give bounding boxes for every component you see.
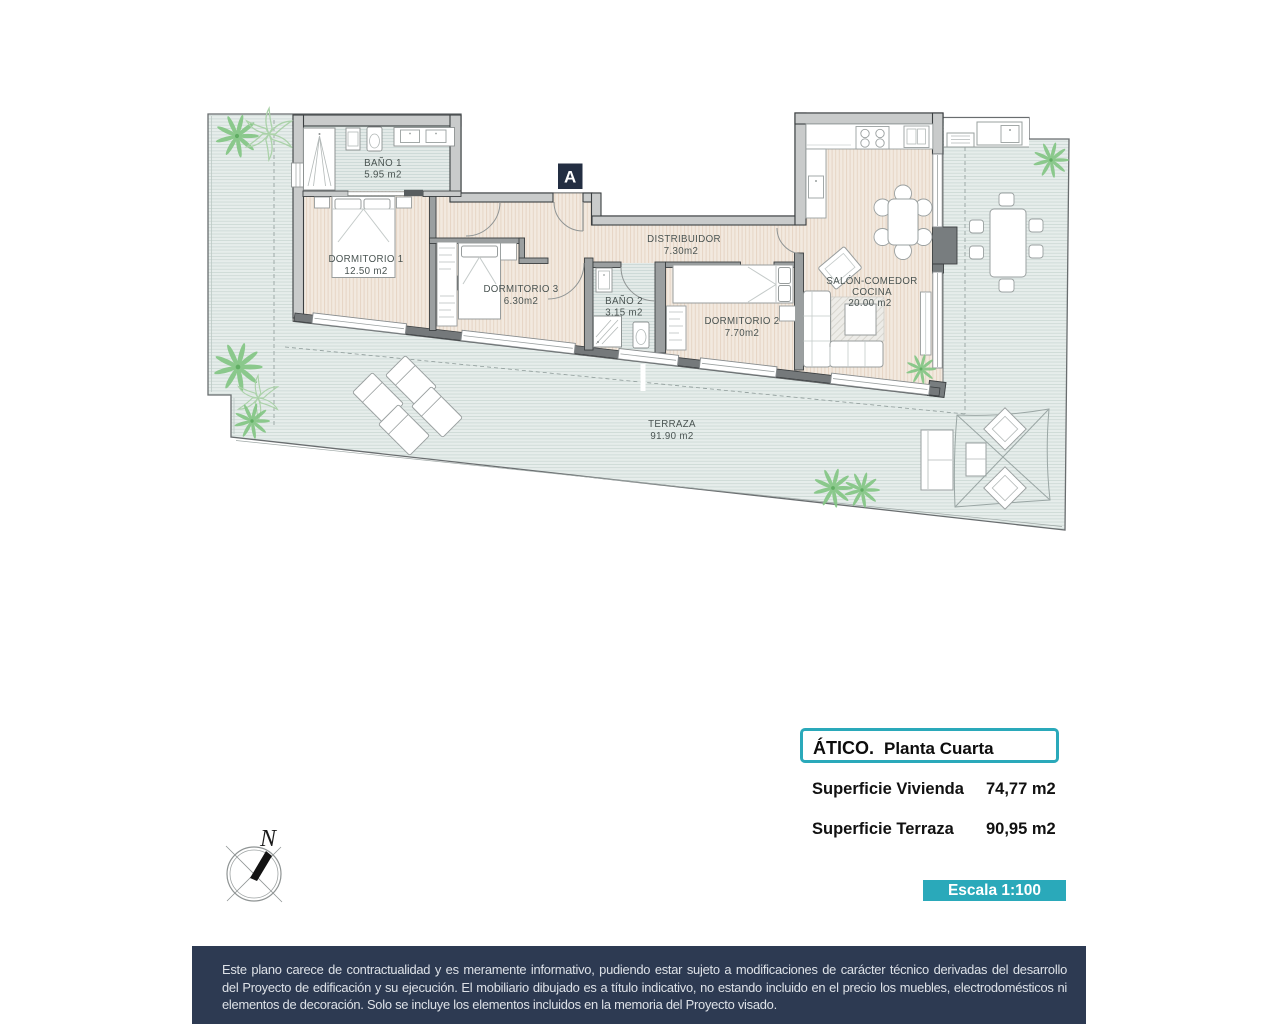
svg-text:BAÑO 2: BAÑO 2	[605, 296, 643, 307]
svg-text:91.90 m2: 91.90 m2	[650, 431, 693, 442]
svg-text:12.50 m2: 12.50 m2	[344, 266, 387, 277]
svg-text:DORMITORIO 3: DORMITORIO 3	[483, 284, 558, 295]
svg-text:DORMITORIO 1: DORMITORIO 1	[328, 254, 403, 265]
svg-text:TERRAZA: TERRAZA	[648, 419, 696, 430]
svg-text:3.15 m2: 3.15 m2	[605, 308, 642, 319]
svg-text:7.30m2: 7.30m2	[664, 246, 698, 257]
svg-text:COCINA: COCINA	[852, 287, 892, 298]
svg-text:5.95 m2: 5.95 m2	[364, 170, 401, 181]
svg-text:DORMITORIO 2: DORMITORIO 2	[704, 316, 779, 327]
svg-text:20.00 m2: 20.00 m2	[848, 298, 891, 309]
svg-text:SALÓN-COMEDOR: SALÓN-COMEDOR	[826, 276, 917, 287]
svg-text:A: A	[564, 168, 576, 187]
svg-text:6.30m2: 6.30m2	[504, 296, 538, 307]
svg-text:DISTRIBUIDOR: DISTRIBUIDOR	[647, 234, 721, 245]
svg-text:BAÑO 1: BAÑO 1	[364, 158, 402, 169]
svg-text:N: N	[259, 826, 278, 852]
svg-text:7.70m2: 7.70m2	[725, 328, 759, 339]
